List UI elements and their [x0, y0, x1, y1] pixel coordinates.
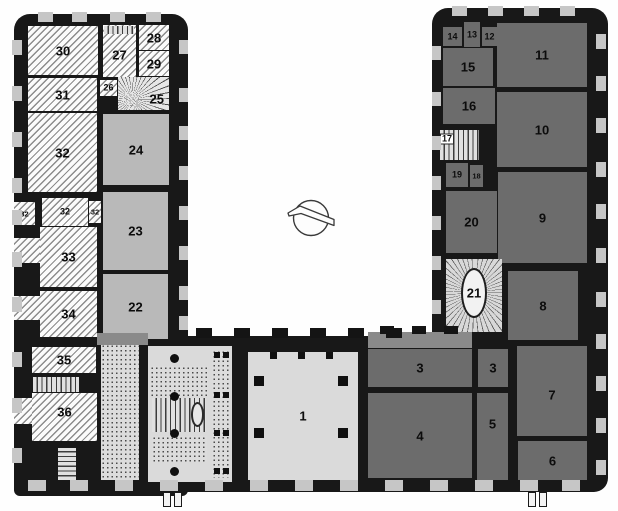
pilaster [412, 326, 426, 334]
room-3: 3 [478, 349, 508, 387]
room-label: 4 [416, 429, 423, 442]
window-opening [110, 12, 125, 22]
porch-column [174, 492, 182, 507]
room-18: 18 [470, 165, 483, 187]
room-label: 33 [61, 251, 75, 264]
column [223, 430, 229, 436]
room-26: 26 [100, 80, 117, 96]
window-opening [115, 480, 133, 491]
room-label: 21 [467, 286, 481, 299]
column-round [170, 467, 179, 476]
window-opening [12, 252, 22, 267]
room-32: 32 [89, 201, 101, 223]
room-28: 28 [139, 25, 169, 50]
room-label: 3 [489, 362, 496, 375]
column [223, 392, 229, 398]
room-label: 17 [440, 134, 454, 145]
porch-column [539, 492, 547, 507]
window-opening [596, 204, 606, 219]
column [326, 352, 333, 359]
room-label: 11 [535, 49, 549, 62]
room-label: 32 [91, 208, 99, 216]
window-opening [596, 334, 606, 349]
stair-top-27 [104, 26, 134, 34]
pilaster [234, 328, 250, 338]
pilaster [444, 326, 458, 334]
window-opening [562, 480, 580, 491]
junction-right [368, 332, 472, 348]
landing-bottom [152, 436, 207, 462]
column [270, 352, 277, 359]
column [214, 352, 220, 358]
room-14: 14 [443, 27, 462, 46]
room-label: 29 [147, 57, 161, 70]
room-label: 25 [150, 92, 164, 105]
room-label: 28 [147, 31, 161, 44]
pilaster [272, 328, 288, 338]
window-opening [72, 12, 87, 22]
room-label: 19 [452, 171, 462, 180]
room-label: 32 [60, 208, 70, 217]
window-opening [596, 34, 606, 49]
window-opening [12, 352, 22, 367]
room-3: 3 [368, 349, 472, 387]
stair-35-36 [33, 377, 79, 392]
room-9: 9 [498, 172, 587, 263]
room-19: 19 [446, 163, 468, 187]
stair-sw [58, 448, 76, 480]
room-label: 12 [484, 32, 494, 41]
room-34: 34 [40, 291, 97, 337]
window-opening [12, 86, 22, 101]
window-opening [205, 480, 223, 491]
room-32: 32 [28, 113, 97, 192]
room-label: 18 [472, 172, 480, 180]
room-label: 3 [416, 362, 423, 375]
column [338, 376, 348, 386]
room-label: 6 [549, 454, 556, 467]
corridor-2 [212, 350, 230, 478]
window-opening [146, 12, 161, 22]
window-opening [179, 286, 188, 300]
window-opening [12, 40, 22, 55]
room-11: 11 [497, 23, 587, 87]
pilaster [348, 328, 364, 338]
room-label: 1 [299, 410, 306, 423]
window-opening [295, 480, 313, 491]
window-opening [12, 210, 22, 225]
column [298, 352, 305, 359]
room-17: 17 [440, 130, 479, 160]
room-label: 14 [447, 32, 457, 41]
column [254, 428, 264, 438]
window-opening [160, 480, 178, 491]
room-12: 12 [482, 27, 497, 46]
room-label: 31 [55, 88, 69, 101]
column-round [170, 429, 179, 438]
room-21: 21 [446, 259, 502, 332]
window-opening [596, 418, 606, 433]
window-opening [432, 256, 441, 270]
floor-plan: 3027282931262532243232323323342235362133… [0, 0, 618, 511]
window-opening [596, 76, 606, 91]
room-35: 35 [32, 347, 96, 373]
window-opening [432, 176, 441, 190]
room-label: 24 [129, 143, 143, 156]
window-opening [12, 297, 22, 312]
window-opening [432, 92, 441, 106]
pilaster [196, 328, 212, 338]
window-opening [596, 376, 606, 391]
window-opening [179, 166, 188, 180]
column [254, 376, 264, 386]
room-29: 29 [139, 51, 169, 76]
window-opening [28, 480, 46, 491]
room-label: 26 [103, 84, 113, 93]
column-round [170, 392, 179, 401]
room-4: 4 [368, 393, 472, 478]
stair-newel [191, 402, 204, 427]
window-opening [452, 6, 467, 16]
window-opening [12, 132, 22, 147]
porch-column [163, 492, 171, 507]
window-opening [596, 292, 606, 307]
window-opening [432, 46, 441, 60]
room-label: 15 [461, 61, 475, 74]
column [214, 468, 220, 474]
window-opening [596, 460, 606, 475]
column-round [170, 354, 179, 363]
pilaster [380, 326, 394, 334]
room-22: 22 [103, 274, 168, 339]
window-opening [430, 480, 448, 491]
window-opening [385, 480, 403, 491]
room-label: 36 [57, 406, 71, 419]
column [214, 430, 220, 436]
room-10: 10 [497, 92, 587, 167]
room-label: 10 [535, 123, 549, 136]
landing-top [150, 366, 208, 396]
room-label: 5 [489, 418, 496, 431]
window-opening [432, 136, 441, 150]
column [338, 428, 348, 438]
room-25: 25 [118, 77, 169, 110]
window-opening [12, 448, 22, 463]
window-opening [596, 248, 606, 263]
window-opening [432, 300, 441, 314]
window-opening [12, 178, 22, 193]
pilaster [310, 328, 326, 338]
room-label: 32 [55, 146, 69, 159]
window-opening [179, 206, 188, 220]
window-opening [12, 398, 22, 413]
room-33: 33 [40, 227, 97, 287]
window-opening [520, 480, 538, 491]
corridor-left [101, 344, 139, 480]
room-label: 7 [548, 388, 555, 401]
window-opening [596, 162, 606, 177]
room-13: 13 [464, 22, 480, 47]
room-label: 9 [539, 211, 546, 224]
north-arrow-icon [286, 194, 338, 246]
room-label: 35 [57, 354, 71, 367]
window-opening [432, 216, 441, 230]
room-label: 20 [464, 216, 478, 229]
room-label: 27 [112, 49, 126, 62]
room-label: 34 [61, 308, 75, 321]
window-opening [38, 12, 53, 22]
room-20: 20 [446, 191, 497, 253]
porch-column [528, 492, 536, 507]
room-16: 16 [443, 88, 495, 124]
room-label: 23 [128, 225, 142, 238]
column [223, 352, 229, 358]
room-7: 7 [517, 346, 587, 436]
room-15: 15 [443, 48, 493, 86]
window-opening [560, 6, 575, 16]
room-31: 31 [28, 78, 97, 111]
room-36: 36 [32, 393, 97, 441]
room-label: 13 [467, 30, 477, 39]
room-1: 1 [248, 352, 358, 480]
room-24: 24 [103, 114, 169, 185]
window-opening [488, 6, 503, 16]
window-opening [340, 480, 358, 491]
window-opening [179, 40, 188, 54]
window-opening [179, 246, 188, 260]
room-32: 32 [42, 198, 88, 226]
window-opening [250, 480, 268, 491]
window-opening [524, 6, 539, 16]
window-opening [596, 118, 606, 133]
room-label: 8 [539, 299, 546, 312]
window-opening [179, 316, 188, 330]
room-label: 30 [56, 44, 70, 57]
room-23: 23 [103, 192, 168, 270]
room-5: 5 [477, 393, 508, 480]
room-30: 30 [28, 26, 98, 75]
room-label: 22 [128, 300, 142, 313]
room-label: 16 [462, 100, 476, 113]
room-8: 8 [508, 271, 578, 340]
column [214, 392, 220, 398]
column [223, 468, 229, 474]
window-opening [70, 480, 88, 491]
stair-oval: 21 [461, 268, 487, 318]
window-opening [179, 88, 188, 102]
junction-left [97, 333, 148, 345]
room-6: 6 [518, 441, 587, 480]
window-opening [475, 480, 493, 491]
stair-main [152, 398, 206, 432]
window-opening [179, 126, 188, 140]
